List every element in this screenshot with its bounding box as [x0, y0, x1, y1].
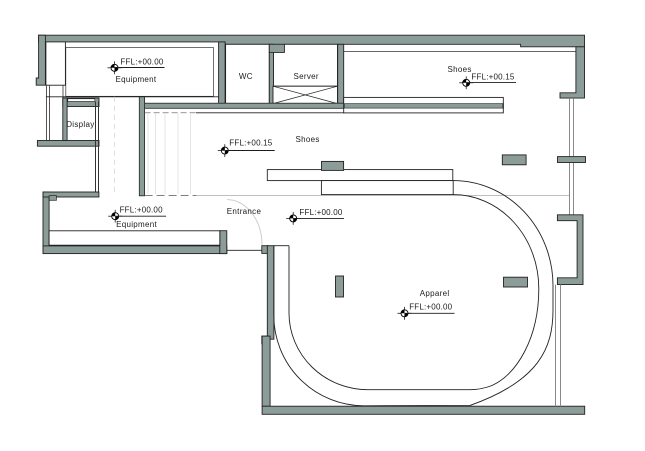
svg-text:FFL:+00.00: FFL:+00.00: [120, 206, 163, 215]
svg-text:Equipment: Equipment: [116, 220, 157, 229]
svg-text:Equipment: Equipment: [116, 75, 157, 84]
svg-text:Server: Server: [294, 72, 319, 81]
svg-text:Display: Display: [66, 120, 94, 129]
svg-text:Shoes: Shoes: [296, 135, 320, 144]
svg-text:Entrance: Entrance: [227, 207, 262, 216]
svg-text:FFL:+00.15: FFL:+00.15: [229, 139, 272, 148]
svg-text:FFL:+00.00: FFL:+00.00: [409, 303, 452, 312]
svg-text:Apparel: Apparel: [420, 289, 450, 298]
svg-text:FFL:+00.00: FFL:+00.00: [120, 57, 163, 66]
svg-text:WC: WC: [239, 72, 253, 81]
svg-text:FFL:+00.15: FFL:+00.15: [471, 73, 514, 82]
svg-text:Shoes: Shoes: [448, 65, 472, 74]
svg-text:FFL:+00.00: FFL:+00.00: [299, 208, 342, 217]
